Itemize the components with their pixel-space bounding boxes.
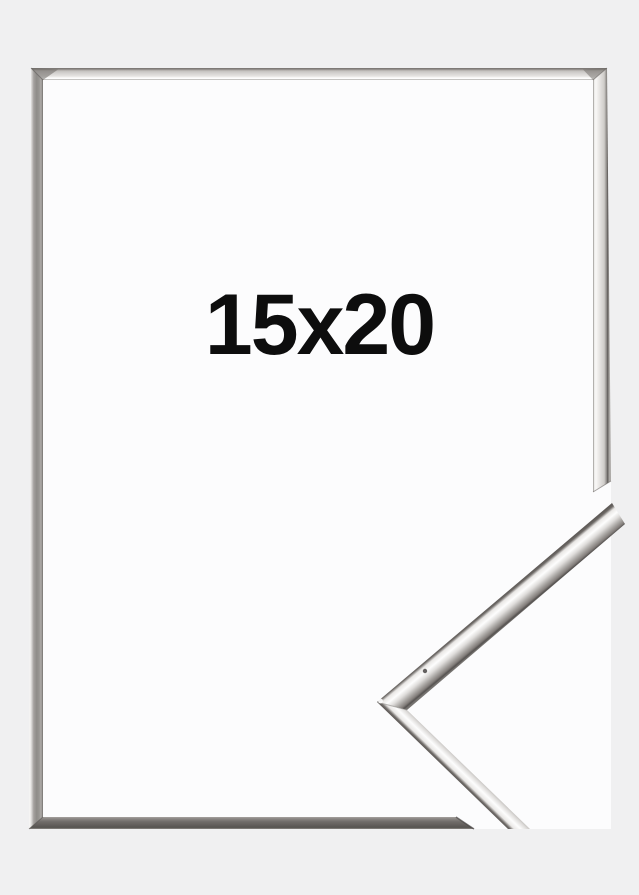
main-frame (29, 68, 611, 829)
corner-detail-reflection-mark (423, 669, 427, 673)
product-photo: 15x20 (0, 0, 639, 895)
frame-photo-illustration (0, 0, 639, 895)
frame-interior (43, 80, 593, 817)
frame-left-bar (29, 68, 43, 829)
frame-bottom-bar (29, 817, 474, 829)
size-label: 15x20 (0, 282, 639, 368)
corner-detail-specular-highlight (378, 699, 383, 704)
frame-top-bar (31, 68, 607, 80)
